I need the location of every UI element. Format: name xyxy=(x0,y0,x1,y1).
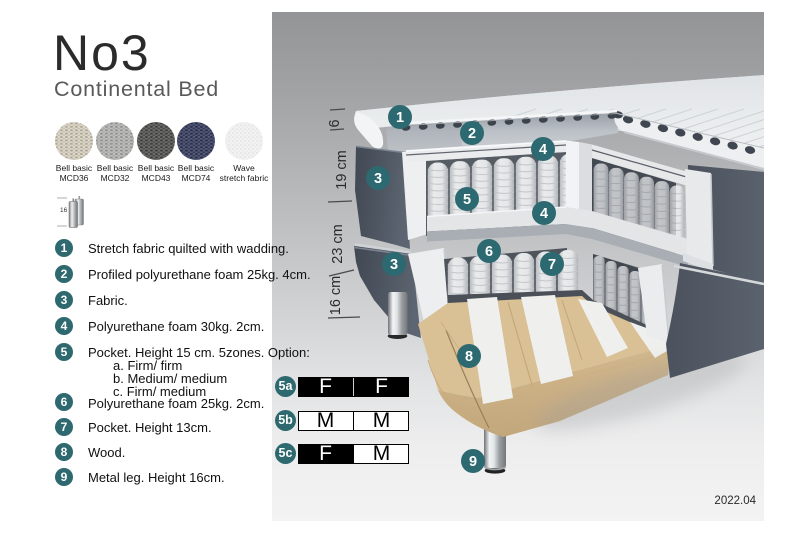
svg-text:9: 9 xyxy=(469,454,477,470)
svg-text:1: 1 xyxy=(396,110,404,126)
svg-text:16 cm: 16 cm xyxy=(328,276,344,316)
svg-text:19 cm: 19 cm xyxy=(334,150,350,190)
svg-text:4: 4 xyxy=(539,142,547,158)
svg-text:2: 2 xyxy=(468,126,476,142)
svg-text:16: 16 xyxy=(60,207,68,214)
svg-text:4: 4 xyxy=(540,206,548,222)
svg-text:3: 3 xyxy=(390,257,398,273)
svg-text:6: 6 xyxy=(485,244,493,260)
svg-text:23 cm: 23 cm xyxy=(330,224,346,264)
svg-text:5: 5 xyxy=(463,192,471,208)
svg-text:3: 3 xyxy=(374,171,382,187)
svg-text:6: 6 xyxy=(327,119,343,127)
svg-text:8: 8 xyxy=(465,349,473,365)
svg-text:7: 7 xyxy=(548,257,556,273)
